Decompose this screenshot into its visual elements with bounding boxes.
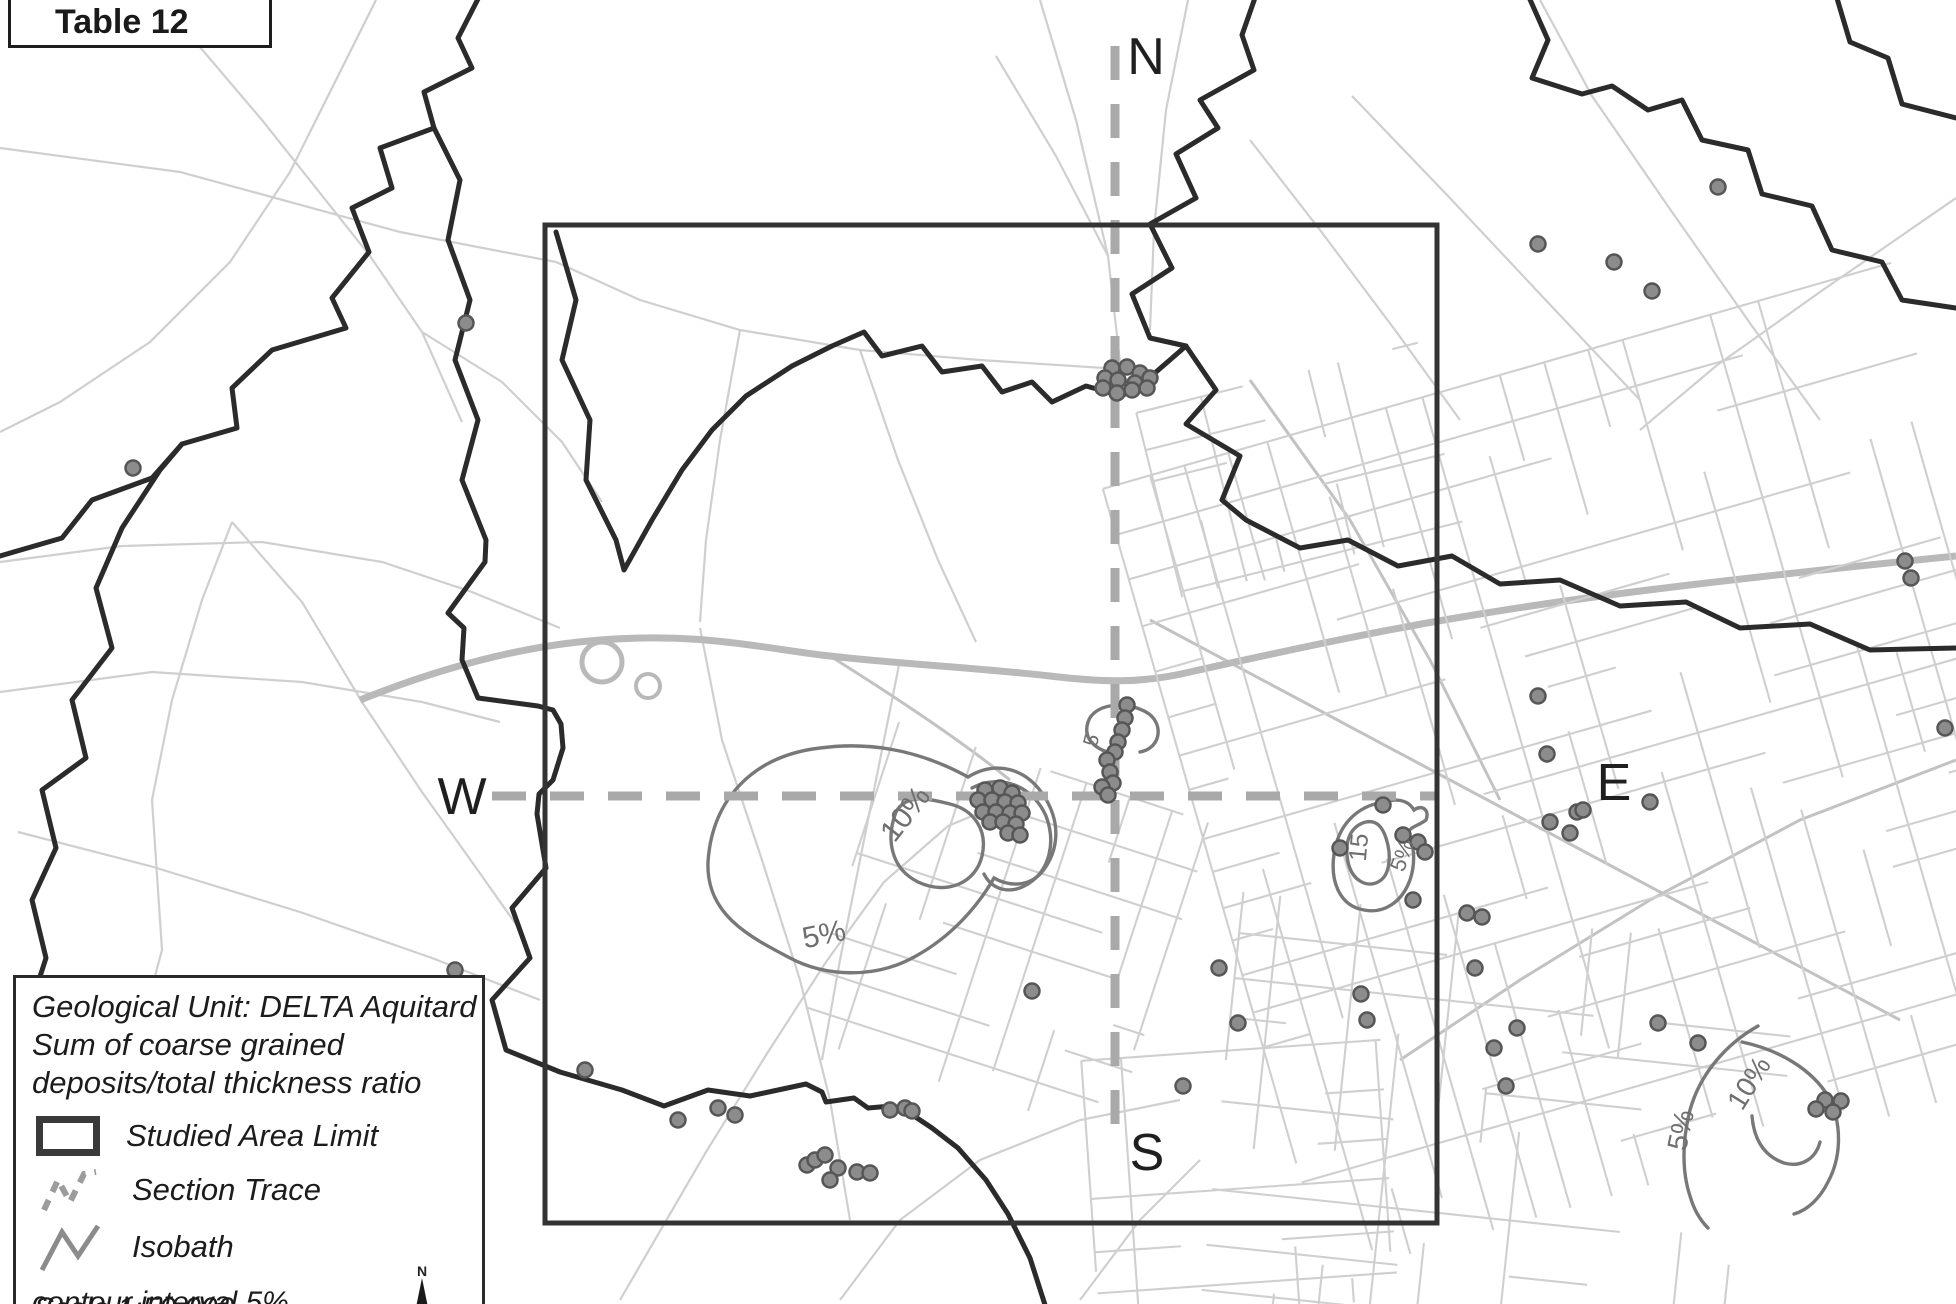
isobath-zigzag-icon [36, 1218, 106, 1276]
data-point [863, 1166, 878, 1181]
street [1548, 667, 1616, 687]
data-point [1826, 1105, 1841, 1120]
data-point [1607, 255, 1622, 270]
street [1923, 876, 1949, 966]
street [1261, 1296, 1324, 1303]
street [1653, 445, 1683, 550]
data-point [1176, 1079, 1191, 1094]
contour-label: 10% [874, 780, 937, 848]
street [1738, 589, 1770, 702]
contour-label: 15 [1344, 832, 1374, 862]
street [1870, 439, 1891, 510]
street [993, 965, 1027, 1071]
label-south: S [1130, 1124, 1165, 1182]
street [1376, 1040, 1384, 1154]
street [1758, 301, 1793, 424]
street [1252, 415, 1361, 446]
street [1494, 942, 1533, 1078]
street [1384, 1154, 1391, 1252]
data-point [1406, 893, 1421, 908]
street [830, 933, 956, 974]
street [1081, 1050, 1231, 1060]
data-point [1938, 721, 1953, 736]
street [1517, 338, 1630, 370]
street [1225, 609, 1236, 649]
street [1095, 1246, 1181, 1252]
street [1201, 652, 1235, 770]
street [839, 954, 870, 1050]
studied-area-rect-icon [36, 1116, 100, 1156]
road-line [1040, 0, 1122, 380]
contour-label: 5% [1661, 1107, 1700, 1153]
street [1121, 1058, 1128, 1156]
street [1597, 966, 1725, 1003]
data-point [1354, 987, 1369, 1002]
street [1352, 1278, 1354, 1302]
street [1640, 753, 1765, 789]
street [1191, 519, 1341, 562]
street [1605, 1172, 1612, 1196]
street [1202, 1290, 1262, 1296]
label-north: N [1127, 28, 1165, 86]
street [1953, 565, 1956, 616]
street [1325, 1089, 1384, 1093]
street [1221, 1101, 1393, 1119]
street [1123, 848, 1197, 872]
street [1290, 1043, 1343, 1047]
data-point [1360, 1013, 1375, 1028]
data-point [1475, 910, 1490, 925]
street [1506, 1132, 1519, 1254]
street [1195, 810, 1226, 919]
road-line [860, 350, 976, 642]
highway-roundabout [582, 642, 622, 682]
street [1921, 564, 1956, 580]
street [1164, 525, 1182, 597]
data-point [823, 1173, 838, 1188]
street [1272, 787, 1387, 820]
street [1434, 403, 1576, 444]
street [1179, 718, 1310, 755]
street [1630, 315, 1709, 338]
street [1181, 582, 1219, 592]
street [1801, 810, 1836, 932]
street [1634, 1134, 1649, 1186]
boundary-line [1836, 0, 1956, 118]
street [1028, 1030, 1054, 1111]
data-point [1711, 180, 1726, 195]
street [1544, 362, 1588, 514]
road-line [160, 0, 462, 422]
street [1070, 783, 1086, 833]
data-point [578, 1063, 593, 1078]
street [1480, 1088, 1486, 1143]
road-line [822, 660, 900, 1060]
data-point [1231, 1016, 1246, 1031]
street [1468, 980, 1494, 1072]
street [1412, 948, 1456, 1101]
street [1588, 1114, 1605, 1172]
street [1203, 820, 1271, 840]
street [1674, 1232, 1681, 1300]
road-line [0, 148, 556, 262]
street [1882, 613, 1956, 644]
legend-title: Geological Unit: DELTA Aquitard Sum of c… [32, 988, 482, 1102]
isobath-line [708, 746, 1056, 973]
label-west: W [437, 768, 486, 826]
street [1863, 850, 1891, 946]
street [1362, 611, 1387, 697]
street [939, 1034, 955, 1082]
street [1179, 868, 1193, 911]
street [1503, 815, 1527, 899]
legend-item-label: Section Trace [132, 1172, 321, 1208]
street [1490, 456, 1526, 582]
street [1345, 904, 1361, 1055]
street [1759, 484, 1799, 625]
data-point [728, 1108, 743, 1123]
street [1472, 1155, 1489, 1215]
street [1911, 422, 1934, 502]
boundary-line [1186, 346, 1956, 650]
street [1212, 1189, 1353, 1204]
street [1933, 1091, 1937, 1103]
street [1533, 1079, 1568, 1201]
street [1391, 1034, 1398, 1103]
legend-title-line2: Sum of coarse grained [32, 1026, 482, 1064]
street [1695, 473, 1850, 517]
data-point [1691, 1036, 1706, 1051]
legend-item-label: Studied Area Limit [126, 1118, 378, 1154]
street [1769, 1003, 1926, 1048]
street [1568, 517, 1695, 554]
street [1272, 1294, 1274, 1304]
boundary-line [0, 0, 480, 556]
road-line [232, 522, 520, 930]
data-point [1510, 1021, 1525, 1036]
street [1588, 350, 1610, 427]
street [1733, 396, 1758, 485]
data-point [905, 1104, 920, 1119]
street [1317, 1058, 1359, 1206]
street [1588, 973, 1610, 1048]
street [1718, 1265, 1728, 1304]
street [1213, 853, 1280, 872]
legend-item-section-trace: Section Trace [36, 1162, 482, 1218]
street [1575, 929, 1588, 973]
street [1380, 458, 1551, 507]
street [1672, 723, 1731, 740]
data-point [711, 1101, 726, 1116]
data-point [1487, 1041, 1502, 1056]
data-point [1540, 747, 1555, 762]
street [1845, 353, 1917, 374]
street [1510, 711, 1652, 752]
data-point [459, 316, 474, 331]
data-point [126, 461, 141, 476]
street [1669, 1300, 1674, 1304]
street [1704, 472, 1738, 590]
road-line [700, 330, 740, 622]
street [1302, 1146, 1430, 1183]
data-point [1110, 386, 1125, 401]
data-point [1468, 961, 1483, 976]
data-point [1025, 984, 1040, 999]
data-point [1140, 381, 1155, 396]
highway-roundabout [636, 674, 660, 698]
street [1368, 1233, 1378, 1304]
data-point [883, 1103, 898, 1118]
data-point [1576, 803, 1591, 818]
street [1568, 1200, 1570, 1207]
street [1777, 263, 1891, 296]
road-line [422, 332, 602, 502]
data-point [1096, 381, 1111, 396]
street [1231, 1046, 1290, 1050]
data-point [1531, 689, 1546, 704]
street [818, 970, 989, 1026]
data-point [1904, 571, 1919, 586]
road-line [1250, 140, 1460, 420]
street [920, 873, 935, 920]
street [1389, 1013, 1429, 1153]
street [1338, 363, 1366, 476]
street [1303, 565, 1340, 693]
street [1136, 413, 1164, 525]
street [1417, 1243, 1424, 1304]
data-point [1645, 284, 1660, 299]
street [1681, 672, 1695, 722]
section-trace-dashes-icon [36, 1162, 106, 1218]
street [1297, 1272, 1397, 1279]
street [913, 871, 1102, 932]
road-artery [1150, 620, 1900, 1020]
data-point [1531, 237, 1546, 252]
road-line [1540, 0, 1820, 420]
street [1444, 914, 1458, 1049]
street [1306, 1019, 1317, 1059]
scale-text: Scale 1:50,000 [34, 1292, 234, 1304]
street [1081, 1061, 1092, 1211]
street [1336, 1178, 1389, 1182]
street [943, 923, 1115, 979]
data-point [1898, 554, 1913, 569]
street [1896, 682, 1956, 715]
street [1928, 1024, 1956, 1052]
data-point [1376, 798, 1391, 813]
street [960, 1057, 1099, 1102]
data-point [1651, 1016, 1666, 1031]
legend-item-label: Isobath [132, 1229, 234, 1265]
street [935, 747, 976, 873]
street [1886, 787, 1956, 831]
data-point [1643, 795, 1658, 810]
street [1317, 1265, 1323, 1304]
road-artery [1250, 380, 1500, 800]
street [1456, 1101, 1472, 1156]
street [1134, 911, 1179, 1051]
data-point [1013, 828, 1028, 843]
street [1206, 1245, 1397, 1265]
contour-label: 5 [1079, 732, 1104, 749]
data-point [1563, 826, 1578, 841]
street [1508, 695, 1547, 832]
street [1591, 1074, 1680, 1099]
street [1098, 1285, 1220, 1294]
street [1858, 1007, 1889, 1116]
road-line [1352, 96, 1640, 400]
street [1135, 811, 1172, 924]
street [1695, 722, 1720, 810]
label-east: E [1597, 754, 1632, 812]
street [1219, 1279, 1296, 1284]
street [1411, 927, 1552, 968]
street [1092, 1211, 1096, 1271]
street [1118, 924, 1136, 979]
street [1189, 779, 1228, 790]
boundary-line [1528, 0, 1956, 308]
north-arrow: N [402, 1264, 442, 1304]
data-point [1125, 383, 1140, 398]
legend-item-studied-area: Studied Area Limit [36, 1116, 482, 1156]
data-point [1212, 961, 1227, 976]
road-artery [830, 656, 1010, 780]
street [870, 903, 886, 954]
street [1793, 424, 1829, 548]
street [1634, 1060, 1735, 1071]
street [1655, 1022, 1791, 1036]
figure-title: Table 12 [55, 3, 189, 42]
street [1318, 1139, 1388, 1144]
section-traces [492, 46, 1437, 1128]
street [1874, 651, 1956, 682]
street [1547, 832, 1575, 929]
street [1704, 919, 1747, 1069]
data-point [818, 1148, 833, 1163]
road-line [0, 0, 376, 432]
street [1897, 652, 1925, 751]
street [1372, 521, 1462, 544]
street [1857, 646, 1886, 747]
street [1226, 892, 1244, 1060]
road-line [556, 262, 1104, 368]
street [1731, 694, 1833, 723]
boundary-line [556, 232, 1186, 570]
data-point [1101, 788, 1116, 803]
data-point [671, 1113, 686, 1128]
street [1353, 1204, 1490, 1218]
data-point [1809, 1102, 1824, 1117]
street [1891, 510, 1903, 552]
street [1893, 821, 1956, 866]
street [954, 891, 1000, 1034]
street [978, 853, 1055, 878]
data-point [1460, 906, 1475, 921]
street [1623, 340, 1653, 445]
street [1783, 760, 1862, 783]
north-arrow-icon [410, 1278, 434, 1304]
street [1886, 747, 1923, 876]
north-arrow-label: N [402, 1264, 442, 1278]
street [1497, 1254, 1506, 1304]
street [1306, 890, 1343, 1018]
street [806, 1007, 959, 1057]
data-point [1418, 845, 1433, 860]
street [1239, 933, 1447, 955]
street [1658, 928, 1683, 1015]
street [1525, 608, 1694, 656]
street [1237, 648, 1275, 780]
street [1558, 1010, 1588, 1114]
legend: Geological Unit: DELTA Aquitard Sum of c… [13, 975, 485, 1304]
figure-stage: 10%5%5155%10%5% N W E S Table 12 Geologi… [0, 0, 1956, 1304]
street [1533, 1208, 1536, 1218]
road-line [0, 542, 560, 628]
street [1131, 586, 1168, 714]
street [1386, 408, 1426, 546]
street [1129, 562, 1191, 580]
street [1927, 960, 1956, 1003]
data-point [1499, 1079, 1514, 1094]
street [1751, 788, 1785, 908]
street [1168, 704, 1216, 718]
street [1509, 1277, 1587, 1285]
street [857, 853, 914, 871]
street [1360, 1206, 1373, 1250]
street [1949, 965, 1956, 1071]
data-point [1543, 815, 1558, 830]
figure-title-box: Table 12 [8, 0, 272, 48]
legend-title-line1: Geological Unit: DELTA Aquitard [32, 988, 482, 1026]
legend-title-line3: deposits/total thickness ratio [32, 1064, 482, 1102]
street [1836, 931, 1858, 1007]
boundary-line [434, 128, 1046, 1304]
